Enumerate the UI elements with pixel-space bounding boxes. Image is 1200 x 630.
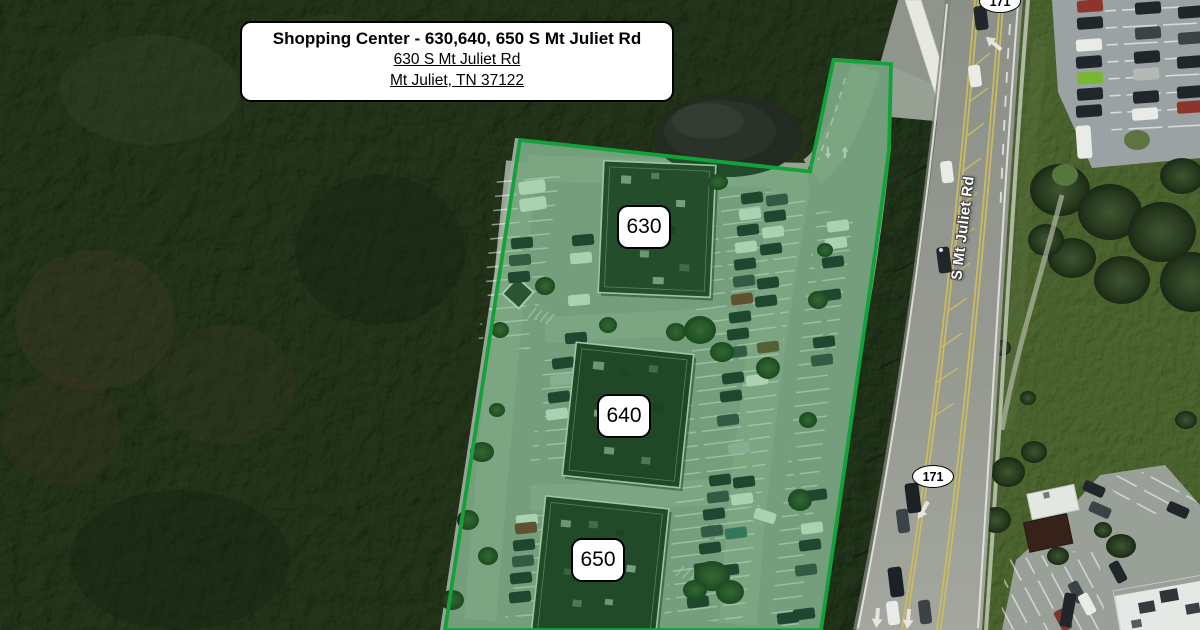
building-marker-650: 650 <box>571 538 625 582</box>
building-marker-640: 640 <box>597 394 651 438</box>
building-marker-630: 630 <box>617 205 671 249</box>
info-card: Shopping Center - 630,640, 650 S Mt Juli… <box>240 21 674 102</box>
property-title: Shopping Center - 630,640, 650 S Mt Juli… <box>250 28 664 50</box>
address-link-line1[interactable]: 630 S Mt Juliet Rd <box>250 50 664 71</box>
address-link-line2[interactable]: Mt Juliet, TN 37122 <box>250 71 664 92</box>
route-shield-171-mid: 171 <box>912 465 954 488</box>
map-canvas[interactable]: Shopping Center - 630,640, 650 S Mt Juli… <box>0 0 1200 630</box>
